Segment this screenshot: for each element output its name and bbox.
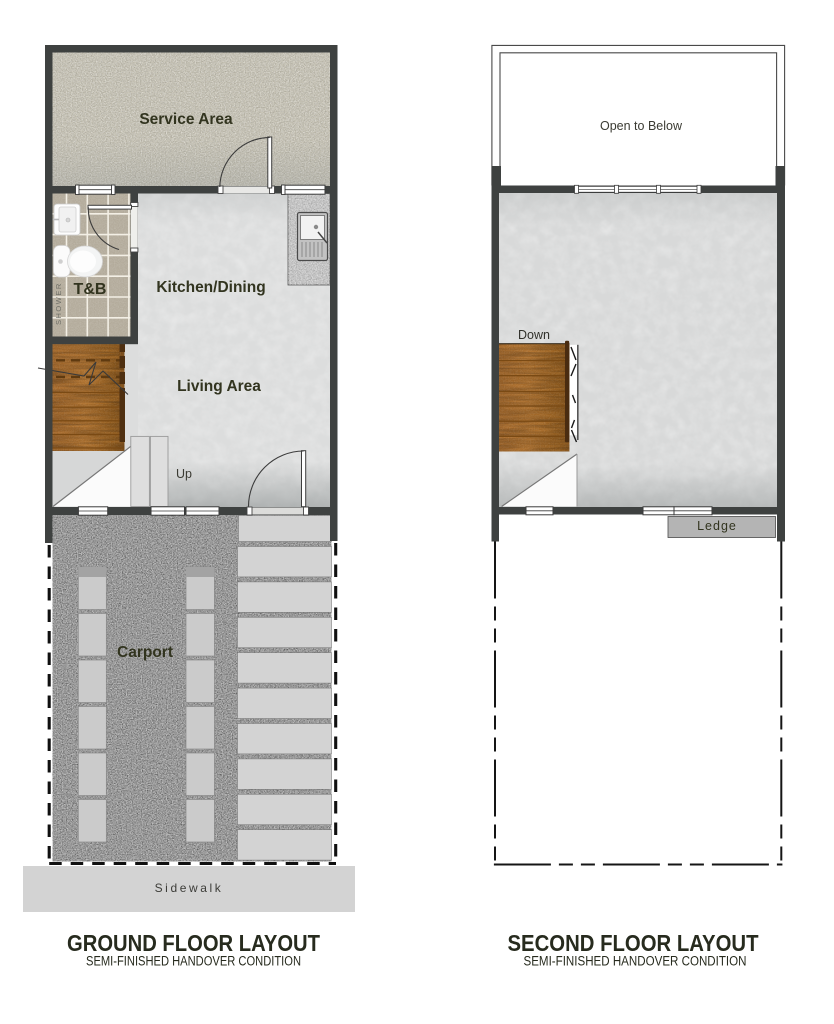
svg-text:Open to Below: Open to Below: [600, 119, 683, 133]
svg-text:SEMI-FINISHED HANDOVER CONDITI: SEMI-FINISHED HANDOVER CONDITION: [86, 954, 301, 969]
svg-text:Service Area: Service Area: [139, 111, 233, 128]
svg-text:Up: Up: [176, 467, 192, 481]
svg-text:SHOWER: SHOWER: [54, 282, 63, 325]
svg-text:Down: Down: [518, 328, 550, 342]
svg-text:T&B: T&B: [74, 281, 107, 298]
svg-text:GROUND FLOOR LAYOUT: GROUND FLOOR LAYOUT: [67, 930, 320, 956]
svg-text:SECOND FLOOR LAYOUT: SECOND FLOOR LAYOUT: [508, 930, 759, 956]
svg-text:Living Area: Living Area: [177, 378, 261, 395]
svg-text:Carport: Carport: [117, 644, 173, 661]
svg-text:Sidewalk: Sidewalk: [155, 881, 224, 895]
svg-text:Ledge: Ledge: [697, 519, 737, 533]
svg-text:SEMI-FINISHED HANDOVER CONDITI: SEMI-FINISHED HANDOVER CONDITION: [524, 954, 747, 969]
svg-text:Kitchen/Dining: Kitchen/Dining: [156, 279, 265, 296]
